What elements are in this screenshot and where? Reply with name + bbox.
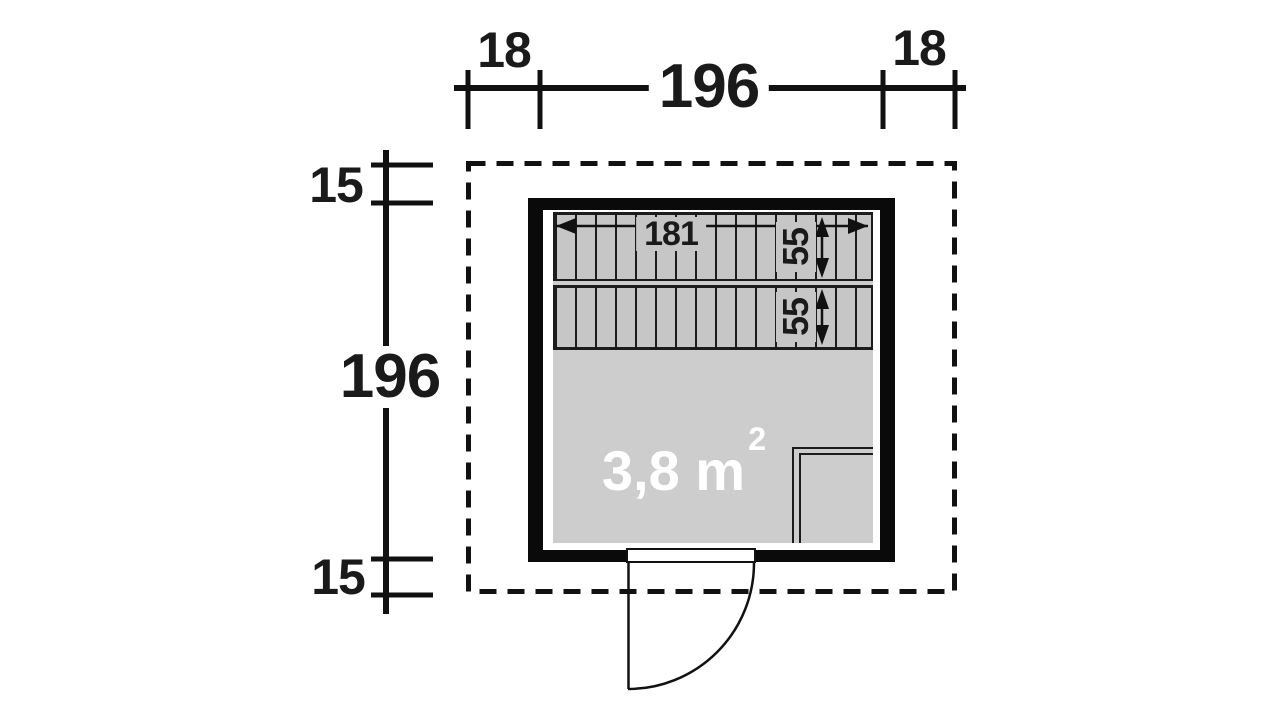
floor-area-value: 3,8 m bbox=[602, 439, 745, 502]
dim-left-bottom-overhang: 15 bbox=[311, 552, 365, 602]
dim-top-span: 196 bbox=[649, 56, 769, 118]
dim-top-right-overhang: 18 bbox=[892, 23, 946, 73]
dim-top-left-overhang: 18 bbox=[477, 25, 531, 75]
roof-outline-dashed bbox=[469, 164, 955, 592]
floor-area-label: 3,8 m2 bbox=[602, 443, 766, 499]
dim-bench-upper-depth: 55 bbox=[776, 222, 816, 272]
sauna-floor-plan: 18 196 18 15 196 15 181 55 55 3,8 m2 bbox=[0, 0, 1280, 720]
dim-left-span: 196 bbox=[330, 346, 450, 408]
dim-left-top-overhang: 15 bbox=[309, 160, 363, 210]
bench-lower-depth-arrow bbox=[815, 289, 829, 345]
door-swing-arc bbox=[628, 563, 754, 689]
dim-bench-length: 181 bbox=[636, 217, 706, 251]
door bbox=[627, 549, 755, 689]
dim-bench-lower-depth: 55 bbox=[776, 292, 816, 342]
floor-area-superscript: 2 bbox=[748, 421, 766, 457]
plan-linework bbox=[0, 0, 1280, 720]
door-threshold bbox=[627, 549, 755, 562]
